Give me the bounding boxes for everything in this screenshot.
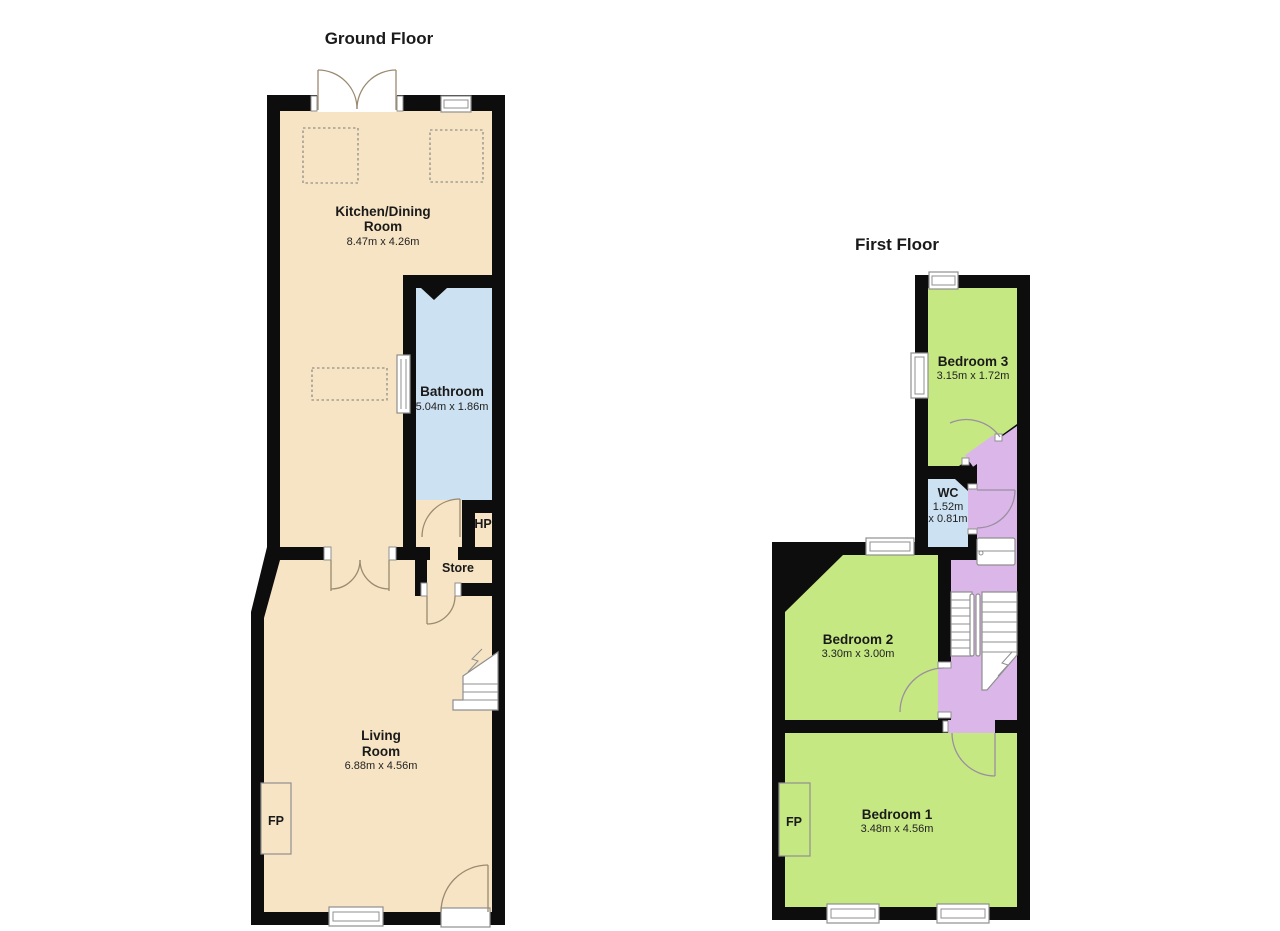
bedroom3-top-window (929, 272, 958, 289)
bedroom1-dims: 3.48m x 4.56m (861, 823, 934, 835)
living-label-line1: Living (361, 728, 401, 743)
living-dims: 6.88m x 4.56m (345, 760, 418, 772)
bedroom3-label: Bedroom 3 (938, 354, 1009, 369)
wc-dims-line2: x 0.81m (928, 513, 967, 525)
kitchen-label-line2: Room (364, 219, 402, 234)
store-label: Store (442, 561, 474, 575)
bedroom1-label: Bedroom 1 (862, 807, 933, 822)
living-room-window (329, 907, 383, 926)
kitchen-living-door-opening (330, 547, 390, 561)
bedroom1-fp-label: FP (786, 815, 802, 829)
bedroom2-dims: 3.30m x 3.00m (822, 648, 895, 660)
kitchen-top-window (441, 96, 471, 112)
wc-door-opening (968, 489, 977, 529)
bedroom3-dims: 3.15m x 1.72m (937, 370, 1010, 382)
store-door-opening (427, 583, 455, 597)
ground-floor-plan: Ground Floor Kitchen/Dining Room 8.47m x… (251, 29, 505, 927)
stair-handrail (970, 594, 974, 656)
bedroom1-window-right (937, 904, 989, 923)
bathroom-internal-window (397, 355, 410, 413)
bedroom1-door-opening (948, 720, 995, 733)
kitchen-dims: 8.47m x 4.26m (347, 236, 420, 248)
vestibule-store-opening (430, 547, 458, 561)
bathroom-dims: 5.04m x 1.86m (416, 401, 489, 413)
living-label-line2: Room (362, 744, 400, 759)
landing-cupboard (977, 538, 1015, 565)
bedroom2-window (866, 538, 914, 555)
bedroom2-label: Bedroom 2 (823, 632, 894, 647)
first-floor-title: First Floor (855, 235, 939, 254)
wc-dims-line1: 1.52m (933, 501, 964, 513)
bathroom-vestibule-floor (416, 500, 462, 547)
floor-plan-page: Ground Floor Kitchen/Dining Room 8.47m x… (0, 0, 1280, 931)
bathroom-label: Bathroom (420, 384, 484, 399)
hp-label: HP (474, 517, 491, 531)
ground-floor-title: Ground Floor (325, 29, 434, 48)
bedroom2-door-opening (938, 668, 951, 712)
bedroom1-window-left (827, 904, 879, 923)
floor-plan-svg: Ground Floor Kitchen/Dining Room 8.47m x… (0, 0, 1280, 931)
living-fp-label: FP (268, 814, 284, 828)
bedroom3-side-window (911, 353, 928, 398)
first-floor-plan: First Floor Bedroom 3 3.15m x 1.72m WC 1… (772, 235, 1030, 923)
kitchen-label-line1: Kitchen/Dining (335, 204, 430, 219)
wc-label: WC (938, 486, 959, 500)
